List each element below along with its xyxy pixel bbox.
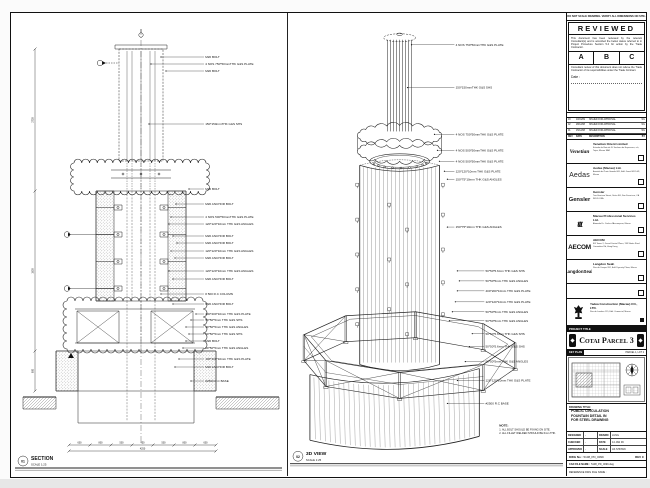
svg-text:4 NOS 750*50mmTHK G&S PLATE: 4 NOS 750*50mmTHK G&S PLATE	[456, 132, 504, 136]
title-block: DO NOT SCALE DRAWING. VERIFY ALL DIMENSI…	[566, 13, 646, 476]
svg-text:120*120*10mm THK G&S PLATE: 120*120*10mm THK G&S PLATE	[456, 169, 501, 173]
field-row: DESIGNED - DRAWN LUNG	[567, 432, 646, 439]
svg-text:SECTION: SECTION	[31, 456, 54, 462]
svg-text:4 NOS 750*50mmTHK G&S PLATE: 4 NOS 750*50mmTHK G&S PLATE	[205, 62, 253, 66]
cad-file-row: CAD FILE NAME : 5108_PD_0099.dwg	[567, 461, 646, 468]
aedas-logo: Aedas	[567, 164, 592, 187]
contractor-name: Yadea Construction (Macau) CO., LTD.	[590, 302, 640, 310]
rev-label: REV	[635, 455, 641, 459]
field-row: APPROVED - SCALE AS SHOWN	[567, 446, 646, 452]
revision-table: 03 10/01/09 ISSUED FOR APPROVAL WL 02 28…	[567, 118, 646, 140]
svg-text:M20 ANCHOR BOLT: M20 ANCHOR BOLT	[205, 234, 234, 238]
svg-text:120*120*10mm THK G&S PLATE: 120*120*10mm THK G&S PLATE	[485, 379, 530, 383]
company-row-langdon-seah: LangdonSeah Langdon Seah Rua do Campo 20…	[567, 260, 646, 284]
langdon-seah-logo: LangdonSeah	[567, 260, 592, 283]
svg-text:NOTE:: NOTE:	[499, 423, 508, 427]
company-name: Gensler	[593, 190, 641, 194]
svg-text:M20 ANCHOR BOLT: M20 ANCHOR BOLT	[205, 256, 234, 260]
svg-text:M20 BOLT: M20 BOLT	[205, 187, 220, 191]
company-address: Two Harrison Street, Suite 400, San Fran…	[593, 195, 641, 200]
section-view-drawing: 600800500450500800600425027001800800M20 …	[11, 13, 287, 476]
status-option-c: C	[620, 52, 644, 64]
company-row-aecom: AECOM AECOM 8/F Tower 2, Grand Central P…	[567, 236, 646, 260]
svg-text:100*100*10mm THK G&S PLATE: 100*100*10mm THK G&S PLATE	[205, 357, 250, 361]
svg-text:M20 BOLT: M20 BOLT	[205, 55, 220, 59]
svg-text:M20 ANCHOR BOLT: M20 ANCHOR BOLT	[205, 241, 234, 245]
company-checkbox	[638, 179, 644, 185]
svg-text:SCALE 1:25: SCALE 1:25	[31, 463, 47, 467]
reviewed-status-options: A B C	[569, 51, 644, 65]
svg-text:M20 BOLT: M20 BOLT	[205, 339, 220, 343]
company-row-venetian: Venetian Venetian Orient Limited Estrada…	[567, 140, 646, 164]
reference-dwg-row: REFERENCE DWG FILE NAME :	[567, 468, 646, 476]
dwg-number-row: DWG No : 5108_PD_0099 REV C	[567, 453, 646, 461]
svg-text:4 NOS 500*50mmTHK G&S PLATE: 4 NOS 500*50mmTHK G&S PLATE	[205, 215, 253, 219]
aecom-logo: AECOM	[567, 236, 592, 259]
svg-text:3D VIEW: 3D VIEW	[306, 451, 327, 457]
page-edge	[0, 479, 650, 488]
reviewed-paragraph-1: This document has been reviewed by the r…	[571, 37, 642, 50]
company-name: AECOM	[593, 238, 641, 242]
status-option-b: B	[594, 52, 619, 64]
drawing-title-line: FOR STEEL DRAWING	[571, 418, 644, 423]
reviewed-paragraph-2: Consultant review of this document does …	[571, 66, 642, 72]
drawing-title-box: DRAWING TITLE: PUBLIC CIRCULATION FOUNTA…	[567, 404, 646, 432]
company-address: Rua do Campo 202, Edif. Dynasty Plaza, M…	[593, 267, 641, 270]
revision-header-row: REV DATE DESCRIPTION BY	[567, 134, 646, 139]
key-plan-label: KEY PLAN	[567, 350, 584, 355]
reviewed-date-line: Date :	[571, 75, 642, 84]
svg-text:# 500 R.C COLUMN: # 500 R.C COLUMN	[205, 292, 233, 296]
svg-text:150*150mmTHK G&S SHS: 150*150mmTHK G&S SHS	[456, 86, 493, 90]
svg-text:4 NOS 500*50mmTHK G&S PLATE: 4 NOS 500*50mmTHK G&S PLATE	[456, 148, 504, 152]
company-checkbox	[638, 290, 644, 296]
company-address: Alameda Dr. Carlos d'Assumpcao, Macau	[593, 223, 641, 226]
svg-text:01: 01	[21, 460, 25, 464]
svg-text:50*50*5mm THK G&S ANGLES: 50*50*5mm THK G&S ANGLES	[485, 279, 528, 283]
svg-text:500: 500	[162, 442, 167, 445]
svg-text:1. ALL BOLT SHOULD BE FIXING O: 1. ALL BOLT SHOULD BE FIXING ON SITE.	[499, 427, 550, 431]
reviewed-title: REVIEWED	[569, 23, 644, 35]
company-row-aedas: Aedas Aedas (Macau) Ltd. Avenida da Prai…	[567, 164, 646, 188]
company-name: Aedas (Macau) Ltd.	[593, 166, 641, 170]
project-title-banner: Cotai Parcel 3	[567, 332, 646, 350]
svg-text:#2500 R.C BASE: #2500 R.C BASE	[205, 379, 229, 383]
svg-text:400*200*10mm THK G&S PLATE: 400*200*10mm THK G&S PLATE	[485, 289, 530, 293]
svg-text:50*50*5mm THK G&S SHS: 50*50*5mm THK G&S SHS	[205, 318, 242, 322]
svg-text:400*200*10mm THK G&S PLATE: 400*200*10mm THK G&S PLATE	[205, 312, 250, 316]
dwg-no-label: DWG No :	[569, 455, 583, 459]
svg-text:120*120*10mm THK G&S ANGLES: 120*120*10mm THK G&S ANGLES	[205, 249, 253, 253]
company-checkbox	[638, 251, 644, 257]
svg-text:50*50*5mm THK G&S ANGLES: 50*50*5mm THK G&S ANGLES	[485, 360, 528, 364]
cad-file-name: 5108_PD_0099.dwg	[591, 463, 614, 466]
svg-text:2700: 2700	[32, 117, 35, 123]
project-title: Cotai Parcel 3	[576, 336, 637, 345]
svg-text:SCALE 1:25: SCALE 1:25	[306, 458, 322, 462]
svg-text:4250: 4250	[140, 448, 146, 451]
company-address: Estrada da Baia de N. Senhora da Esperan…	[593, 147, 641, 152]
key-plan	[567, 356, 646, 404]
svg-text:800: 800	[183, 442, 188, 445]
svg-text:150*150mmTHK G&S SHS: 150*150mmTHK G&S SHS	[205, 122, 242, 126]
svg-text:800: 800	[32, 368, 35, 373]
company-name: Macau Professional Services Ltd.	[593, 214, 641, 222]
svg-text:500: 500	[120, 442, 125, 445]
svg-text:150*75*10mm THK G&S ANGLES: 150*75*10mm THK G&S ANGLES	[456, 177, 502, 181]
field-row: CHECKED - DATE 14 JAN 09	[567, 439, 646, 446]
svg-text:120*120*10mm THK G&S ANGLES: 120*120*10mm THK G&S ANGLES	[205, 222, 253, 226]
svg-text:M20 ANCHOR BOLT: M20 ANCHOR BOLT	[205, 365, 234, 369]
ornament-icon	[637, 334, 644, 347]
svg-text:M20 ANCHOR BOLT: M20 ANCHOR BOLT	[205, 202, 234, 206]
svg-text:50*50*5.6mm THK G&S SHS: 50*50*5.6mm THK G&S SHS	[485, 345, 524, 349]
svg-text:M20 ANCHOR BOLT: M20 ANCHOR BOLT	[205, 277, 234, 281]
svg-text:50*50*5mm THK G&S ANGLES: 50*50*5mm THK G&S ANGLES	[485, 319, 528, 323]
drawing-sheet: 600800500450500800600425027001800800M20 …	[10, 12, 647, 478]
company-checkbox	[638, 203, 644, 209]
svg-text:50*50*5mm THK G&S ANGLES: 50*50*5mm THK G&S ANGLES	[485, 310, 528, 314]
svg-text:50*50*5.6mm THK G&S SHS: 50*50*5.6mm THK G&S SHS	[485, 269, 524, 273]
svg-text:800: 800	[99, 442, 104, 445]
contractor-address: Rua de Londres 115, Edif. Comercial, Mac…	[590, 311, 640, 314]
company-checkbox	[638, 155, 644, 161]
svg-text:4 NOS 500*50mmTHK G&S PLATE: 4 NOS 500*50mmTHK G&S PLATE	[456, 159, 504, 163]
cad-file-label: CAD FILE NAME :	[569, 463, 590, 466]
svg-text:600: 600	[204, 442, 209, 445]
mps-logo: ttt	[567, 212, 592, 235]
svg-text:150*75*10mm THK G&S ANGLES: 150*75*10mm THK G&S ANGLES	[456, 225, 502, 229]
company-address: Avenida da Praia Grande 665, Edif. Great…	[593, 171, 641, 176]
svg-text:M20 BOLT: M20 BOLT	[205, 69, 220, 73]
company-address: 8/F Tower 2, Grand Central Plaza, 138 Sh…	[593, 243, 641, 248]
svg-text:120*120*10mm THK G&S PLATE: 120*120*10mm THK G&S PLATE	[485, 300, 530, 304]
svg-text:50*50*5mm THK G&S ANGLES: 50*50*5mm THK G&S ANGLES	[205, 346, 248, 350]
sheet-top-note: DO NOT SCALE DRAWING. VERIFY ALL DIMENSI…	[567, 13, 646, 21]
svg-text:450: 450	[141, 442, 146, 445]
blank-consultant-row	[567, 284, 646, 299]
company-row-gensler: Gensler Gensler Two Harrison Street, Sui…	[567, 188, 646, 212]
ornament-icon	[569, 334, 576, 347]
company-row-mps: ttt Macau Professional Services Ltd. Ala…	[567, 212, 646, 236]
svg-text:50*50*5mm THK G&S SHS: 50*50*5mm THK G&S SHS	[205, 332, 242, 336]
svg-text:02: 02	[296, 455, 300, 459]
3d-view-drawing: 4 NOS 750*50mmTHK G&S PLATE150*150mmTHK …	[287, 13, 566, 476]
svg-text:50*50*5.6mm THK G&S SHS: 50*50*5.6mm THK G&S SHS	[485, 332, 524, 336]
reviewed-stamp: REVIEWED This document has been reviewed…	[567, 21, 646, 113]
venetian-logo: Venetian	[567, 140, 592, 163]
company-name: Venetian Orient Limited	[593, 142, 641, 146]
drawing-sheet-page: 600800500450500800600425027001800800M20 …	[0, 0, 650, 488]
dwg-no: 5108_PD_0099	[584, 455, 604, 459]
svg-text:50*50*5mm THK G&S ANGLES: 50*50*5mm THK G&S ANGLES	[205, 325, 248, 329]
rev-value: C	[642, 455, 644, 459]
company-checkbox	[638, 227, 644, 233]
svg-text:#2500 R.C BASE: #2500 R.C BASE	[485, 402, 508, 406]
svg-text:M20 ANCHOR BOLT: M20 ANCHOR BOLT	[205, 302, 234, 306]
key-plan-ref: PARCEL 1, LOT 2	[626, 352, 646, 354]
contractor-row: Yadea Construction (Macau) CO., LTD. Rua…	[567, 299, 646, 326]
contractor-mark	[640, 318, 644, 322]
approval-fields-table: DESIGNED - DRAWN LUNG CHECKED - DATE 14 …	[567, 432, 646, 453]
svg-text:1800: 1800	[32, 268, 35, 274]
svg-text:120*120*10mm THK G&S ANGLES: 120*120*10mm THK G&S ANGLES	[205, 269, 253, 273]
svg-text:2. ALL FILLET WELDED SHOULD BE: 2. ALL FILLET WELDED SHOULD BE 6mm THK.	[499, 431, 556, 435]
svg-text:4 NOS 750*50mmTHK G&S PLATE: 4 NOS 750*50mmTHK G&S PLATE	[456, 43, 504, 47]
company-name: Langdon Seah	[593, 262, 641, 266]
status-option-a: A	[569, 52, 594, 64]
company-checkbox	[638, 275, 644, 281]
gensler-logo: Gensler	[567, 188, 592, 211]
svg-text:600: 600	[78, 442, 83, 445]
contractor-logo-icon	[567, 299, 589, 325]
